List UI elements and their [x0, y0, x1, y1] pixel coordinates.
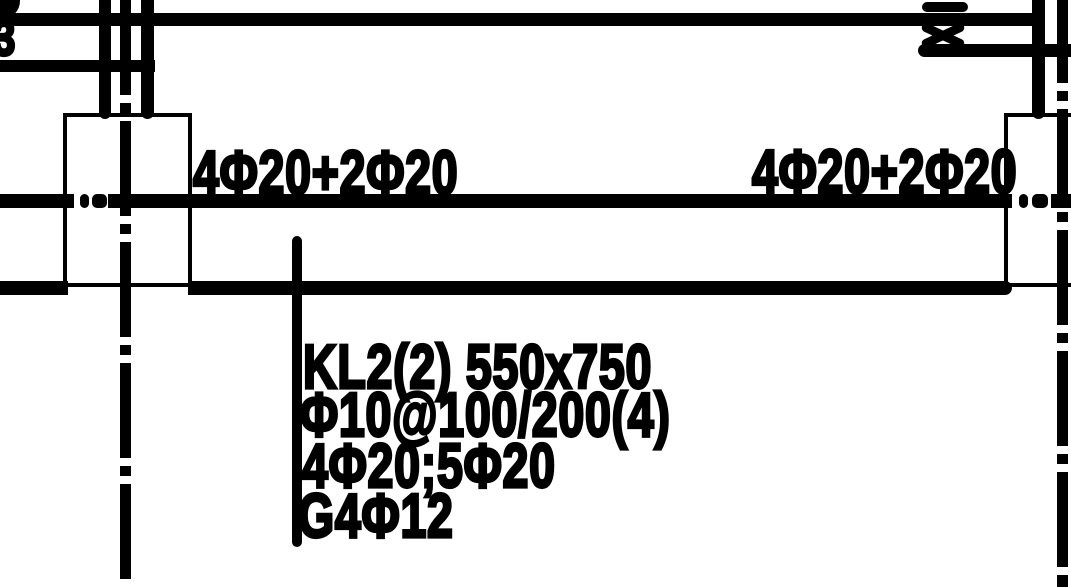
crossing-symbol-top-bar	[922, 2, 968, 12]
vertical-beam-edge-1	[99, 0, 111, 119]
upper-beam-edge-line-lower-left	[0, 60, 155, 72]
beam-top-line-seg3	[1051, 194, 1071, 208]
beam-bottom-line-left	[0, 281, 68, 295]
upper-beam-edge-line-right	[918, 44, 1071, 57]
vertical-beam-edge-3	[1032, 0, 1045, 119]
beam-top-line-dash2	[1032, 194, 1048, 208]
beam-top-line-seg1	[0, 194, 74, 208]
beam-tag-side-bars: G4Φ12	[298, 486, 454, 548]
grid-centerline-left	[120, 0, 131, 587]
upper-beam-edge-line	[0, 13, 1038, 26]
beam-top-line-dot1	[80, 194, 89, 208]
top-rebar-label-right: 4Φ20+2Φ20	[752, 142, 1017, 204]
grid-centerline-right	[1057, 0, 1068, 587]
beam-top-line-dash1	[92, 194, 107, 208]
top-rebar-label-left: 4Φ20+2Φ20	[193, 143, 458, 205]
structural-plan-drawing: 3 4Φ20+2Φ20 4Φ20+2Φ20 KL2(2) 550x750 Φ10…	[0, 0, 1071, 587]
beam-top-line-dot2	[1019, 194, 1028, 208]
vertical-beam-edge-2	[141, 0, 154, 119]
beam-bottom-line-main	[188, 281, 1012, 295]
